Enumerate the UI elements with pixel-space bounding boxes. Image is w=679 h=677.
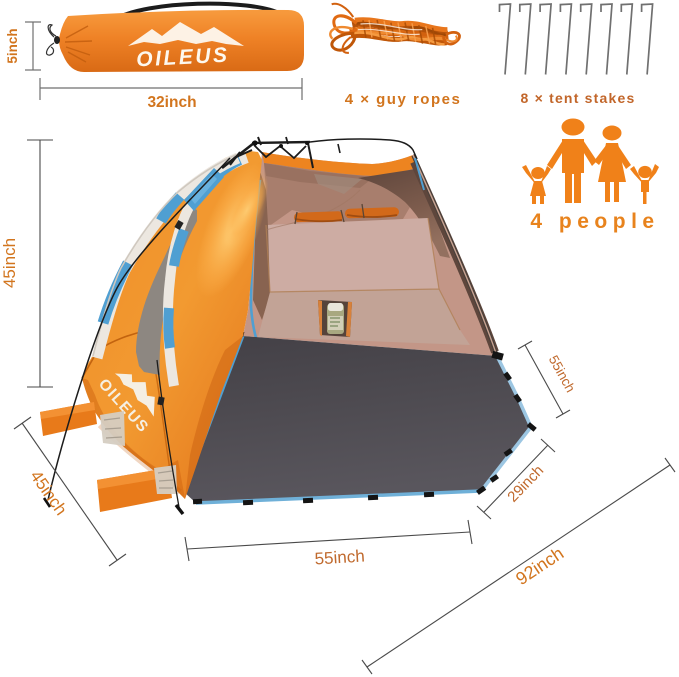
svg-text:55inch: 55inch	[314, 546, 365, 568]
svg-text:92inch: 92inch	[512, 543, 567, 589]
svg-text:32inch: 32inch	[147, 94, 196, 111]
svg-text:4 people: 4 people	[530, 210, 659, 233]
svg-text:55inch: 55inch	[546, 353, 578, 395]
svg-text:5inch: 5inch	[5, 28, 20, 63]
svg-text:OILEUS: OILEUS	[136, 44, 230, 72]
svg-text:45inch: 45inch	[26, 467, 70, 519]
svg-text:8 × tent stakes: 8 × tent stakes	[521, 90, 636, 106]
svg-text:4 × guy ropes: 4 × guy ropes	[345, 91, 462, 108]
svg-text:45inch: 45inch	[0, 238, 19, 288]
